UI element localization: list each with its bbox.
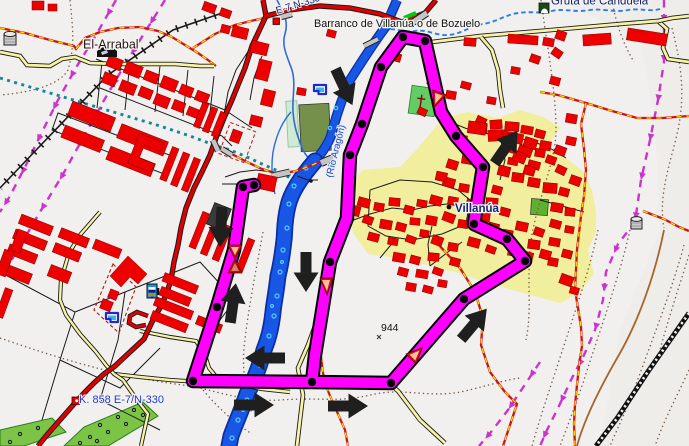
svg-text:Barranco de Villanúa o de Bozu: Barranco de Villanúa o de Bozuelo <box>314 18 480 30</box>
svg-text:El-Arrabal: El-Arrabal <box>83 38 139 52</box>
svg-text:Villanúa: Villanúa <box>455 203 499 215</box>
svg-text:K. 858 E-7/N-330: K. 858 E-7/N-330 <box>79 394 164 406</box>
svg-text:Gruta de Canduela: Gruta de Canduela <box>551 0 649 8</box>
svg-text:944: 944 <box>381 322 399 334</box>
